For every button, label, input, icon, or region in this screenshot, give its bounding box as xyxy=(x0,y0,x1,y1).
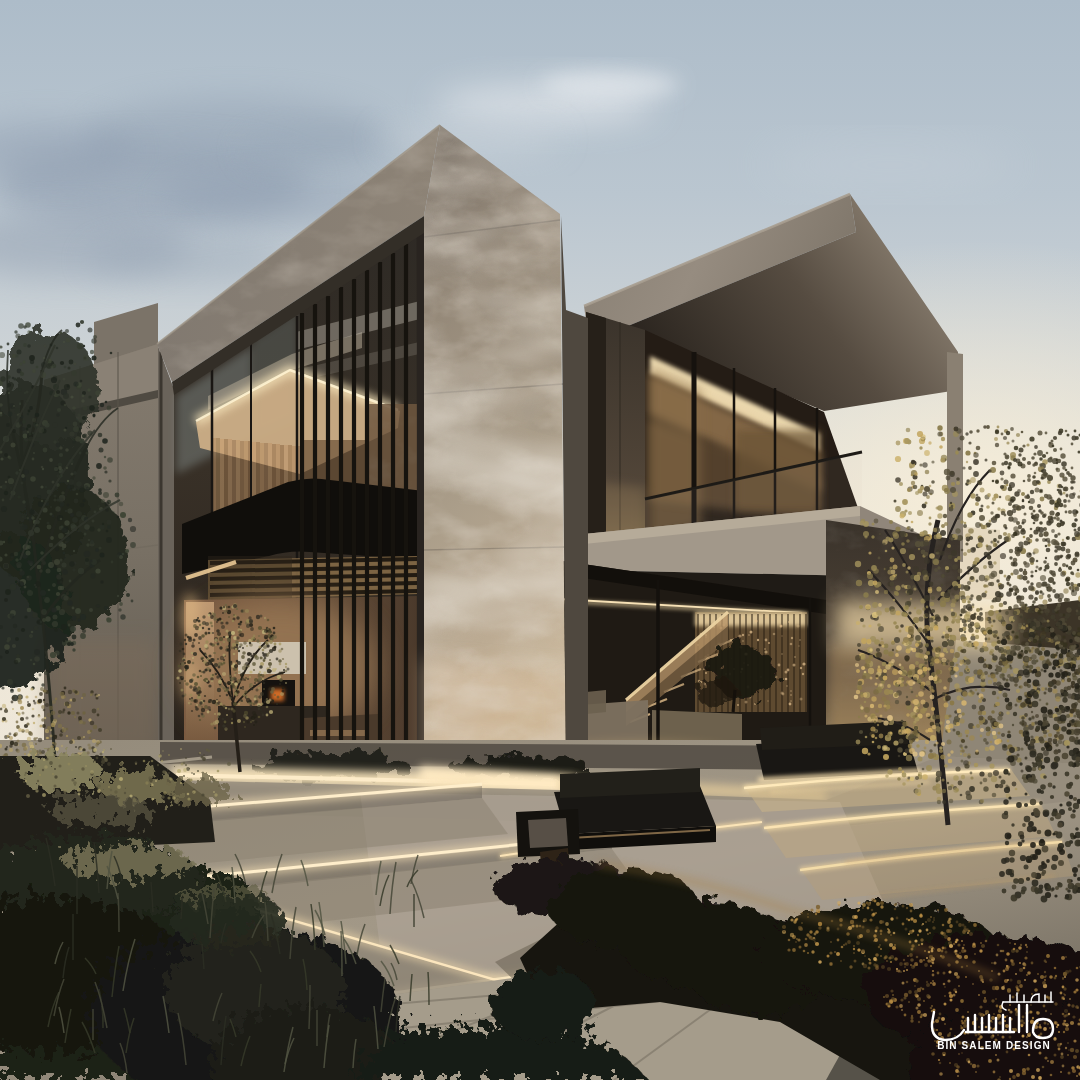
svg-text:BIN SALEM DESIGN: BIN SALEM DESIGN xyxy=(937,1040,1051,1051)
